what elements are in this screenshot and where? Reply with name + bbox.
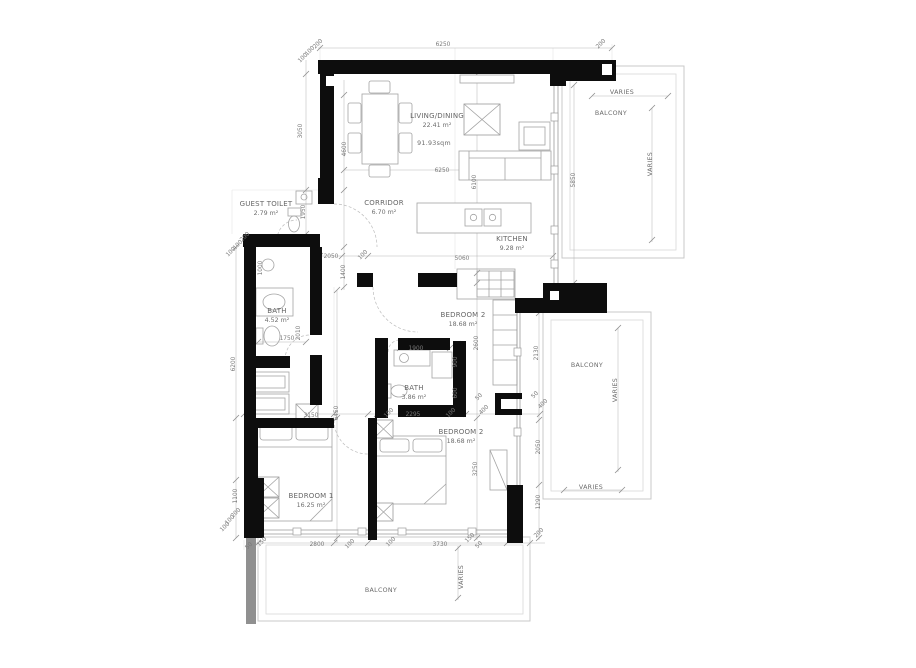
annotation-varies-4: VARIES [579,484,603,491]
dimension-label: 1900 [409,346,424,352]
dimension-label: 5850 [571,172,577,187]
room-area-bedroom-2: 18.68 m² [447,438,476,445]
floor-plan-drawing: LIVING/DINING22.41 m²CORRIDOR6.70 m²GUES… [0,0,916,668]
dimension-label: 50 [475,540,485,550]
dimension-label: 100 [344,538,356,550]
dimension-label: 2050 [536,439,542,454]
room-area-living-dining: 22.41 m² [423,122,452,129]
room-label-bedroom-1: BEDROOM 1 [288,492,333,500]
dimension-label: 2600 [474,335,480,350]
dimension-label: 6100 [472,174,478,189]
kitchen-counter [457,269,515,299]
room-area-bath-2: 3.86 m² [402,394,427,401]
dimension-label: 600 [453,387,459,398]
dimension-label: 1000 [258,260,264,275]
dimension-label: 1400 [341,264,347,279]
dimension-label: 2010 [296,325,302,340]
dimension-label: 6250 [436,42,451,48]
dimension-label: 3250 [473,461,479,476]
room-label-bath-1: BATH [267,307,286,315]
dimension-label: 100 [385,536,397,548]
room-label-living-dining: LIVING/DINING [410,112,464,120]
room-label-bath-2: BATH [404,384,423,392]
dimension-label: 2050 [324,254,339,260]
dimension-label: 3150 [304,413,319,419]
room-label-guest-toilet: GUEST TOILET [240,200,293,208]
dining-table [362,94,398,164]
tv-unit [460,75,514,83]
bed-2 [376,436,446,504]
room-label-bedroom-2: BEDROOM 2 [438,428,483,436]
dimension-label: 3730 [433,542,448,548]
dimension-label: 1750 [280,336,295,342]
annotation-balcony-top-right: BALCONY [595,110,627,117]
floor-plan-canvas: LIVING/DINING22.41 m²CORRIDOR6.70 m²GUES… [0,0,916,668]
ceiling-feature [464,104,500,135]
dimension-label: 2800 [310,542,325,548]
room-label-kitchen: KITCHEN [496,235,528,243]
dimension-label: 2130 [534,345,540,360]
annotation-balcony-bottom: BALCONY [365,587,397,594]
guest-toilet-fixtures [288,191,312,232]
tall-cabinet [493,300,517,385]
annotation-varies-1: VARIES [610,89,634,96]
dimension-label: 50 [475,392,485,402]
dimension-label: 1290 [536,494,542,509]
dimension-label: 5060 [455,256,470,262]
dimension-label: 6200 [231,356,237,371]
annotation-varies-5: VARIES [458,565,465,589]
room-area-bedroom-1: 16.25 m² [297,502,326,509]
dimension-label: 4600 [342,141,348,156]
dimension-label: 400 [478,404,490,416]
room-area-guest-toilet: 2.79 m² [254,210,279,217]
dresser [490,450,507,490]
annotation-total-area: 91.93sqm [417,140,451,147]
room-label-corridor: CORRIDOR [364,199,404,207]
room-label-bedroom-2-upper: BEDROOM 2 [440,311,485,319]
dimension-label: 3050 [298,123,304,138]
annotation-balcony-right: BALCONY [571,362,603,369]
dimension-label: 2295 [406,412,421,418]
furniture [249,75,551,521]
dimension-label: 1950 [301,204,307,219]
room-area-kitchen: 9.28 m² [500,245,525,252]
room-area-bath-1: 4.52 m² [265,317,290,324]
dimension-label: 100 [357,249,369,261]
room-area-corridor: 6.70 m² [372,209,397,216]
kitchen-island [417,203,531,233]
dimension-label: 1100 [233,488,239,503]
dimension-label: 200 [595,38,607,50]
annotation-varies-3: VARIES [612,378,619,402]
dimension-label: 6250 [435,168,450,174]
room-area-bedroom-2-upper: 18.68 m² [449,321,478,328]
dimension-label: 900 [453,356,459,367]
annotation-varies-2: VARIES [647,152,654,176]
dimension-label: 6450 [334,405,340,420]
